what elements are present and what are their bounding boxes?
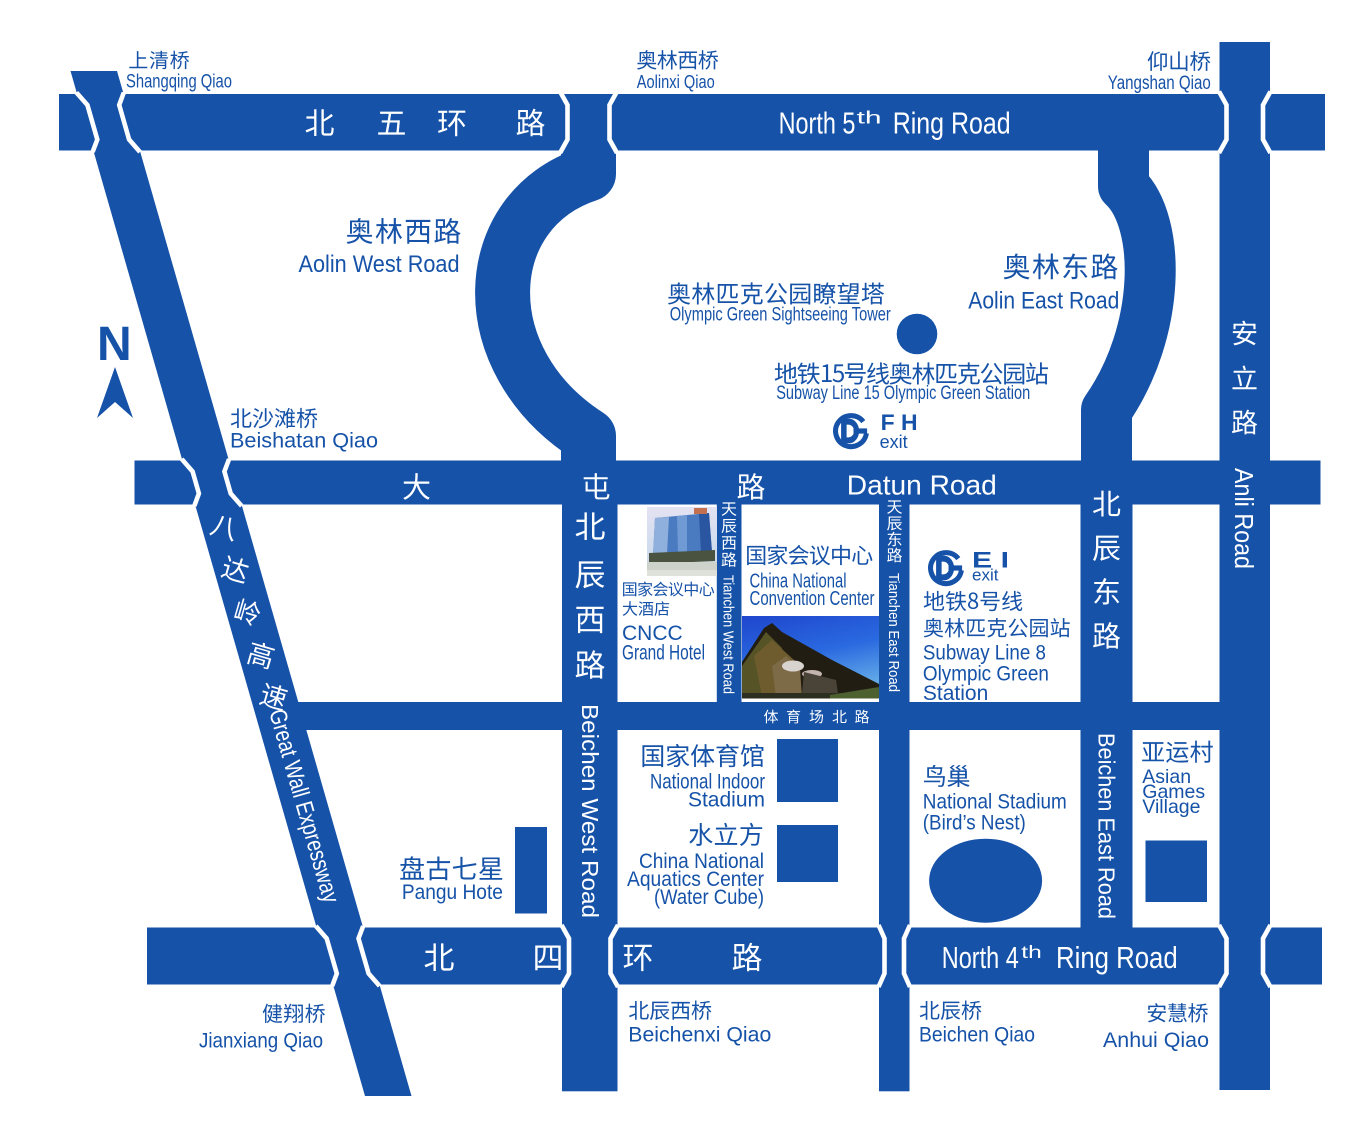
svg-text:North 5: North 5 <box>779 106 856 141</box>
svg-text:Beichen East Road: Beichen East Road <box>1094 733 1120 919</box>
svg-text:Tianchen East Road: Tianchen East Road <box>885 573 902 692</box>
svg-text:Yangshan Qiao: Yangshan Qiao <box>1108 73 1211 94</box>
svg-text:exit: exit <box>880 432 908 452</box>
svg-text:Subway Line 15 Olympic Green S: Subway Line 15 Olympic Green Station <box>776 383 1030 404</box>
svg-text:Anhui Qiao: Anhui Qiao <box>1103 1029 1209 1052</box>
svg-text:th: th <box>857 108 882 128</box>
svg-text:Beichenxi Qiao: Beichenxi Qiao <box>628 1024 771 1047</box>
svg-text:Beishatan Qiao: Beishatan Qiao <box>230 430 378 453</box>
svg-text:Aolin East Road: Aolin East Road <box>968 288 1119 315</box>
svg-text:National Stadium: National Stadium <box>923 791 1067 814</box>
svg-text:Datun Road: Datun Road <box>847 470 997 501</box>
svg-text:Tianchen West Road: Tianchen West Road <box>720 575 737 694</box>
svg-text:Ring Road: Ring Road <box>1056 940 1178 975</box>
svg-text:Aolinxi Qiao: Aolinxi Qiao <box>637 71 715 92</box>
svg-text:(Water Cube): (Water Cube) <box>654 886 764 909</box>
svg-text:Station: Station <box>923 682 988 705</box>
svg-text:Convention Center: Convention Center <box>750 588 875 610</box>
svg-text:Anli Road: Anli Road <box>1229 468 1259 569</box>
svg-text:Olympic Green Sightseeing Towe: Olympic Green Sightseeing Tower <box>670 305 892 326</box>
svg-text:Village: Village <box>1142 796 1200 818</box>
svg-text:Jianxiang Qiao: Jianxiang Qiao <box>199 1030 323 1053</box>
svg-text:Pangu Hote: Pangu Hote <box>402 881 503 904</box>
svg-text:(Bird’s Nest): (Bird’s Nest) <box>923 812 1026 835</box>
svg-text:Beichen Qiao: Beichen Qiao <box>919 1024 1035 1047</box>
svg-text:Subway Line 8: Subway Line 8 <box>923 642 1046 665</box>
svg-text:th: th <box>1021 942 1042 962</box>
svg-text:N: N <box>97 318 132 371</box>
svg-text:exit: exit <box>972 566 999 585</box>
svg-text:Aolin West Road: Aolin West Road <box>299 251 460 278</box>
svg-text:Ring Road: Ring Road <box>893 106 1011 141</box>
svg-text:Stadium: Stadium <box>688 789 765 812</box>
svg-text:North 4: North 4 <box>942 940 1019 975</box>
svg-text:Beichen West Road: Beichen West Road <box>577 704 603 918</box>
svg-text:Shangqing Qiao: Shangqing Qiao <box>126 72 232 93</box>
svg-text:Grand Hotel: Grand Hotel <box>622 642 705 665</box>
